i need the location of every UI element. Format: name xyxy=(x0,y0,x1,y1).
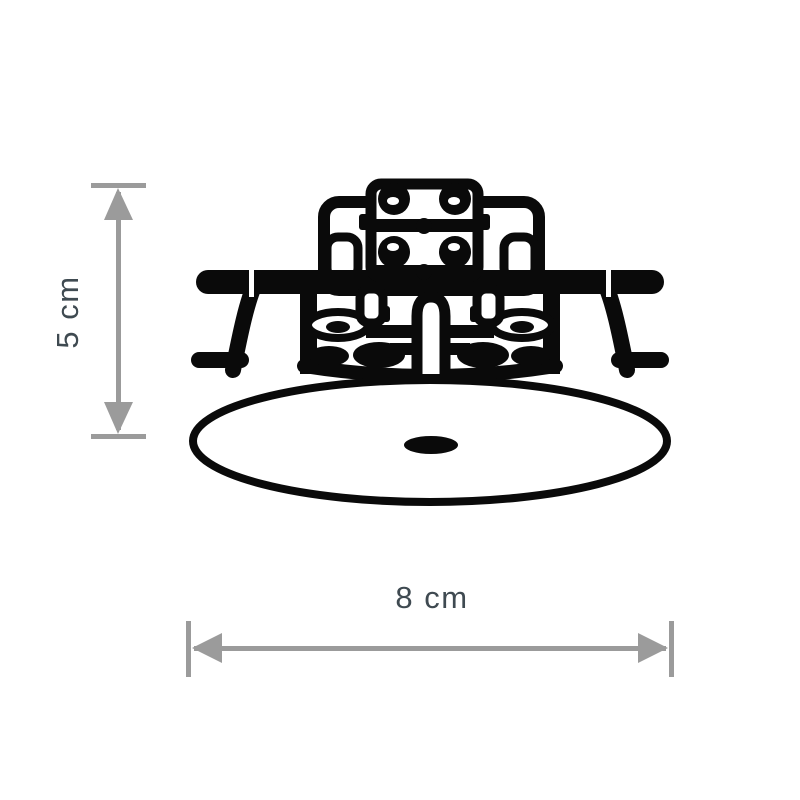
trim-plate xyxy=(193,380,667,502)
terminal-block xyxy=(359,183,490,280)
height-dimension-arrow xyxy=(91,183,146,439)
fixture xyxy=(191,183,669,502)
cable-clamps xyxy=(308,289,552,374)
fixture-technical-drawing xyxy=(0,0,800,800)
height-dimension-label: 5 cm xyxy=(48,212,88,412)
diagram-canvas: 5 cm 8 cm xyxy=(0,0,800,800)
cable-saddle xyxy=(417,297,445,374)
terminal-tab-left xyxy=(359,214,374,230)
width-dimension-arrow xyxy=(186,621,674,677)
terminal-tab-right xyxy=(475,214,490,230)
trim-plate-hole xyxy=(404,436,458,454)
width-dimension-label: 8 cm xyxy=(332,578,532,618)
